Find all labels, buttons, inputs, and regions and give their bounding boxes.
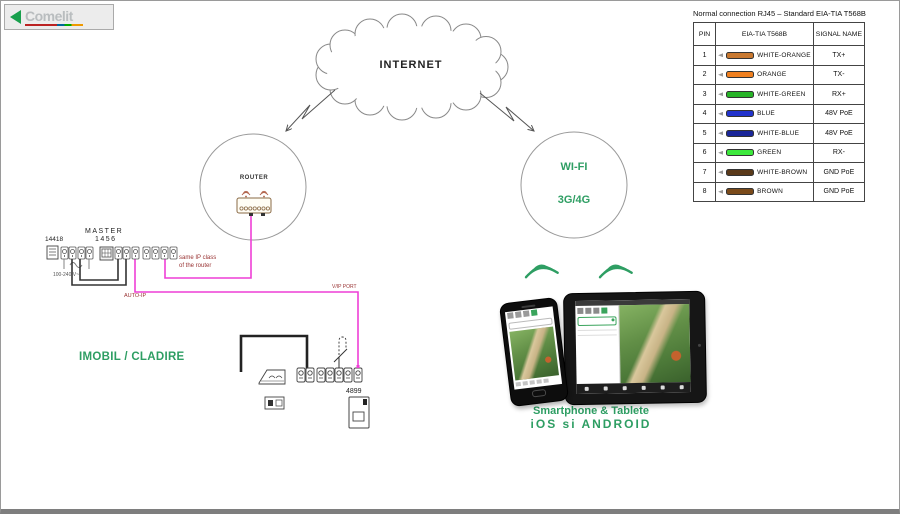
wire-color-bar — [726, 52, 754, 59]
wire-connector-icon — [718, 53, 723, 57]
wire-color-bar — [726, 91, 754, 98]
mains-wires — [64, 259, 89, 269]
wire-connector-icon — [718, 190, 723, 194]
wire-name: WHITE-BLUE — [757, 130, 799, 137]
devices-caption-line2: iOS si ANDROID — [496, 417, 686, 431]
wire-row: 2 ORANGE TX- — [694, 65, 865, 85]
master-monitor-1456 — [100, 247, 113, 260]
phone-screen — [505, 306, 562, 389]
wire-name: ORANGE — [757, 71, 786, 78]
logo-arrow-icon — [10, 10, 21, 24]
smartphone-device — [499, 297, 569, 407]
power-supply-14418 — [47, 246, 58, 259]
wire-pin: 4 — [694, 104, 716, 124]
wire-name: WHITE-ORANGE — [757, 52, 811, 59]
3g4g-label: 3G/4G — [544, 194, 604, 206]
logo-tagline-bar — [25, 24, 83, 26]
bus-loop-wires — [72, 259, 126, 285]
tablet-contact-row — [577, 316, 616, 326]
mains-voltage-label: 100-240 V~ — [53, 272, 79, 278]
same-ip-note-line1: same IP class — [179, 254, 216, 262]
wire-connector-icon — [718, 151, 723, 155]
wifi-waves-icon-left — [525, 263, 558, 277]
terminal-block-lan — [143, 247, 177, 259]
comelit-logo: Comelit — [4, 4, 114, 30]
header-wire: EIA-TIA T568B — [716, 23, 814, 46]
wire-row: 1 WHITE-ORANGE TX+ — [694, 46, 865, 66]
wire-color-bar — [726, 71, 754, 78]
wire-signal: RX+ — [813, 85, 864, 105]
tablet-camera-dot — [698, 344, 701, 347]
tablet-toolbar-icons — [577, 307, 616, 314]
wire-name: GREEN — [757, 149, 781, 156]
wire-table-header: PIN EIA-TIA T568B SIGNAL NAME — [694, 23, 865, 46]
wire-row: 6 GREEN RX- — [694, 143, 865, 163]
wire-row: 5 WHITE-BLUE 48V PoE — [694, 124, 865, 144]
link-cloud-wifi — [480, 93, 534, 131]
wifi-circle — [521, 132, 627, 238]
wire-row: 3 WHITE-GREEN RX+ — [694, 85, 865, 105]
internet-label: INTERNET — [356, 59, 466, 71]
wire-signal: GND PoE — [813, 163, 864, 183]
tablet-app-panel — [575, 305, 620, 384]
auto-ip-label: AUTO-IP — [124, 293, 146, 299]
wire-pin: 8 — [694, 182, 716, 202]
wire-pin: 1 — [694, 46, 716, 66]
gateway-module-4899 — [349, 397, 369, 428]
header-signal: SIGNAL NAME — [813, 23, 864, 46]
wire-row: 8 BROWN GND PoE — [694, 182, 865, 202]
vip-port-label: V/IP PORT — [332, 284, 357, 290]
wire-pin: 5 — [694, 124, 716, 144]
wire-color-bar — [726, 110, 754, 117]
relay-module-icon — [265, 397, 284, 409]
phone-camera-view — [509, 326, 559, 380]
wire-connector-icon — [718, 92, 723, 96]
terminal-block-b — [115, 247, 139, 259]
wire-pin: 2 — [694, 65, 716, 85]
wifi-label: WI-FI — [544, 161, 604, 173]
wiring-table-title: Normal connection RJ45 – Standard EIA-TI… — [693, 9, 865, 18]
diagram-page: Comelit INTERNET ROUTER WI-FI 3G/4G 1441… — [0, 0, 900, 514]
wire-color-bar — [726, 149, 754, 156]
panel-terminal-row — [297, 365, 362, 382]
same-ip-note-line2: of the router — [179, 262, 216, 270]
router-icon — [237, 191, 271, 216]
wire-pin: 7 — [694, 163, 716, 183]
wire-signal: TX+ — [813, 46, 864, 66]
psu-label: 14418 — [45, 236, 63, 243]
rj45-wiring-table: Normal connection RJ45 – Standard EIA-TI… — [693, 9, 865, 202]
wire-pin: 3 — [694, 85, 716, 105]
phone-speaker — [521, 304, 535, 308]
door-contact-switch — [334, 337, 347, 368]
wire-signal: TX- — [813, 65, 864, 85]
wire-table-body: 1 WHITE-ORANGE TX+ 2 ORANGE TX- — [694, 46, 865, 202]
wire-row: 7 WHITE-BROWN GND PoE — [694, 163, 865, 183]
router-label: ROUTER — [229, 175, 279, 181]
wire-connector-icon — [718, 170, 723, 174]
wire-color-bar — [726, 188, 754, 195]
wire-connector-icon — [718, 73, 723, 77]
master-model-label: 1456 — [95, 236, 117, 243]
wire-pin: 6 — [694, 143, 716, 163]
wire-row: 4 BLUE 48V PoE — [694, 104, 865, 124]
terminal-block-a — [61, 247, 93, 259]
wire-connector-icon — [718, 112, 723, 116]
tablet-callbar — [577, 382, 691, 394]
wire-color-bar — [726, 130, 754, 137]
wire-name: BROWN — [757, 188, 783, 195]
wire-color-bar — [726, 169, 754, 176]
gateway-model-label: 4899 — [346, 388, 362, 395]
master-label: MASTER — [85, 228, 123, 235]
wire-signal: GND PoE — [813, 182, 864, 202]
wire-signal: 48V PoE — [813, 104, 864, 124]
tablet-camera-view — [619, 304, 690, 383]
riser-loop-wire — [241, 336, 307, 372]
logo-brand-text: Comelit — [25, 9, 83, 23]
devices-caption-line1: Smartphone & Tablete — [496, 405, 686, 417]
tablet-device — [563, 291, 707, 405]
tablet-screen — [575, 299, 691, 394]
wire-signal: RX- — [813, 143, 864, 163]
phone-home-button — [532, 389, 547, 398]
header-pin: PIN — [694, 23, 716, 46]
building-label: IMOBIL / CLADIRE — [79, 351, 185, 363]
wire-name: WHITE-BROWN — [757, 169, 807, 176]
wire-signal: 48V PoE — [813, 124, 864, 144]
door-station-icon — [259, 370, 285, 384]
router-circle — [200, 134, 306, 240]
wire-connector-icon — [718, 131, 723, 135]
wire-name: WHITE-GREEN — [757, 91, 805, 98]
wifi-waves-icon-right — [599, 263, 632, 277]
same-ip-note: same IP class of the router — [179, 254, 216, 270]
link-cloud-router — [286, 90, 335, 131]
wire-name: BLUE — [757, 110, 775, 117]
